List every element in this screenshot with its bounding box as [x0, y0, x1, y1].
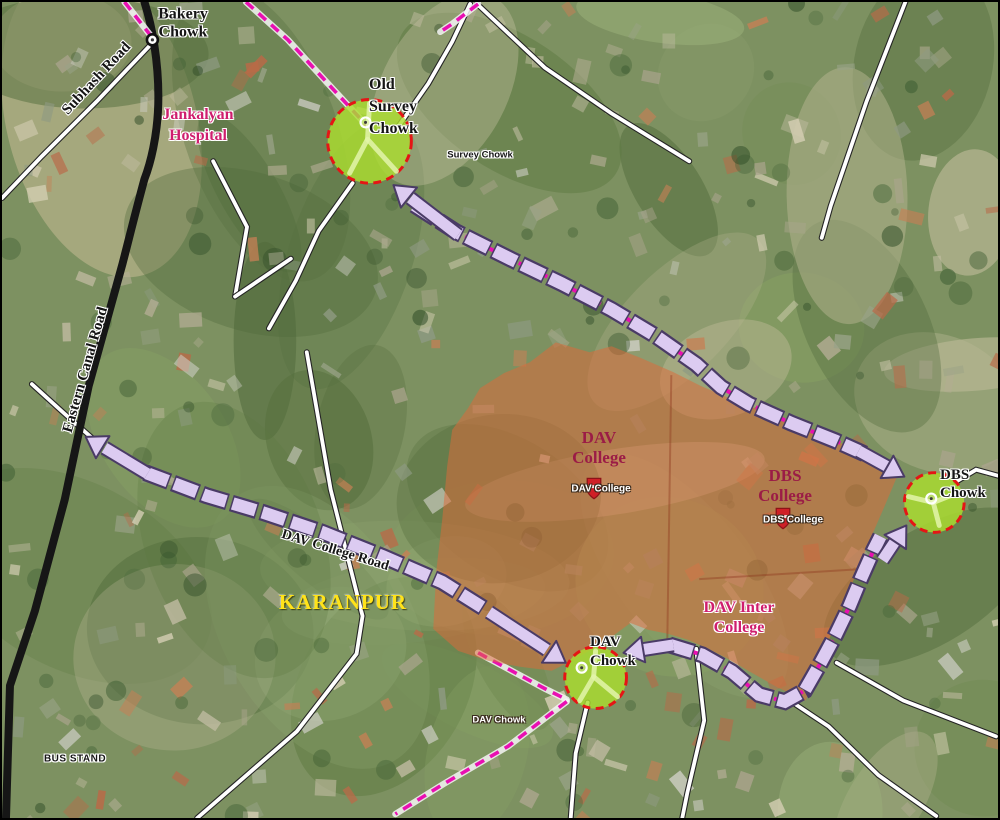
label-dbs-college: DBS College	[758, 466, 812, 506]
satellite-map: Bakery Chowk Subhash Road Jankalyan Hosp…	[0, 0, 1000, 820]
label-karanpur: KARANPUR	[279, 590, 407, 614]
map-canvas	[2, 2, 998, 818]
label-jankalyan-hospital: Jankalyan Hospital	[162, 104, 233, 146]
label-bakery-chowk: Bakery Chowk	[158, 6, 208, 43]
label-bakery-line2: Chowk	[158, 24, 208, 42]
label-dav-college: DAV College	[572, 428, 626, 468]
label-bus-stand: BUS STAND	[44, 753, 106, 765]
label-dbs-chowk: DBS Chowk	[940, 466, 986, 502]
label-bakery-line1: Bakery	[158, 6, 208, 24]
label-dav-chowk-small: DAV Chowk	[472, 716, 525, 727]
label-dbs-college-small: DBS College	[763, 514, 823, 526]
label-survey-chowk-small: Survey Chowk	[447, 151, 512, 162]
label-dav-college-small: DAV College	[571, 483, 630, 495]
label-old-survey-chowk: Old Survey Chowk	[369, 74, 418, 140]
label-dav-inter-college: DAV Inter College	[704, 598, 775, 638]
label-dav-chowk: DAV Chowk	[590, 633, 636, 671]
